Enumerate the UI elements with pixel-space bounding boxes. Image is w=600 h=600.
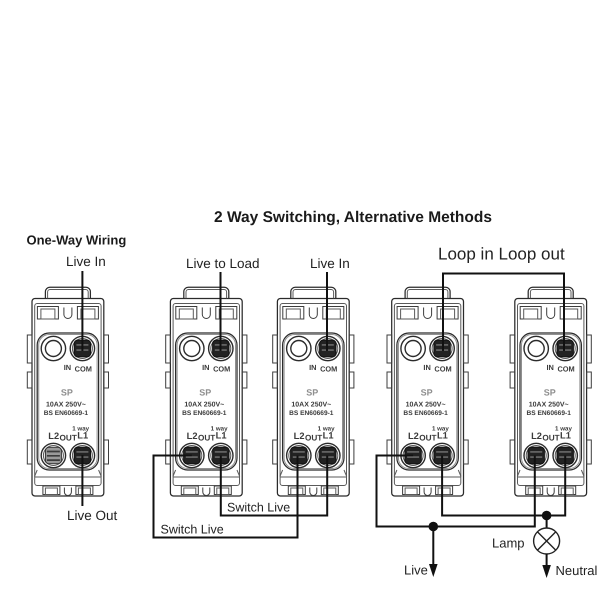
svg-text:Lamp: Lamp (492, 536, 525, 551)
svg-text:Live In: Live In (310, 256, 350, 271)
svg-text:Live In: Live In (66, 254, 106, 269)
svg-text:Loop in Loop out: Loop in Loop out (438, 245, 565, 264)
svg-text:Live to Load: Live to Load (186, 256, 260, 271)
svg-text:Neutral: Neutral (556, 563, 598, 578)
svg-text:Switch Live: Switch Live (161, 523, 224, 537)
svg-text:One-Way Wiring: One-Way Wiring (27, 233, 127, 248)
svg-text:Live Out: Live Out (67, 508, 118, 523)
svg-text:Live: Live (404, 563, 428, 578)
svg-text:2 Way Switching, Alternative M: 2 Way Switching, Alternative Methods (214, 209, 492, 226)
svg-text:Switch Live: Switch Live (227, 501, 290, 515)
